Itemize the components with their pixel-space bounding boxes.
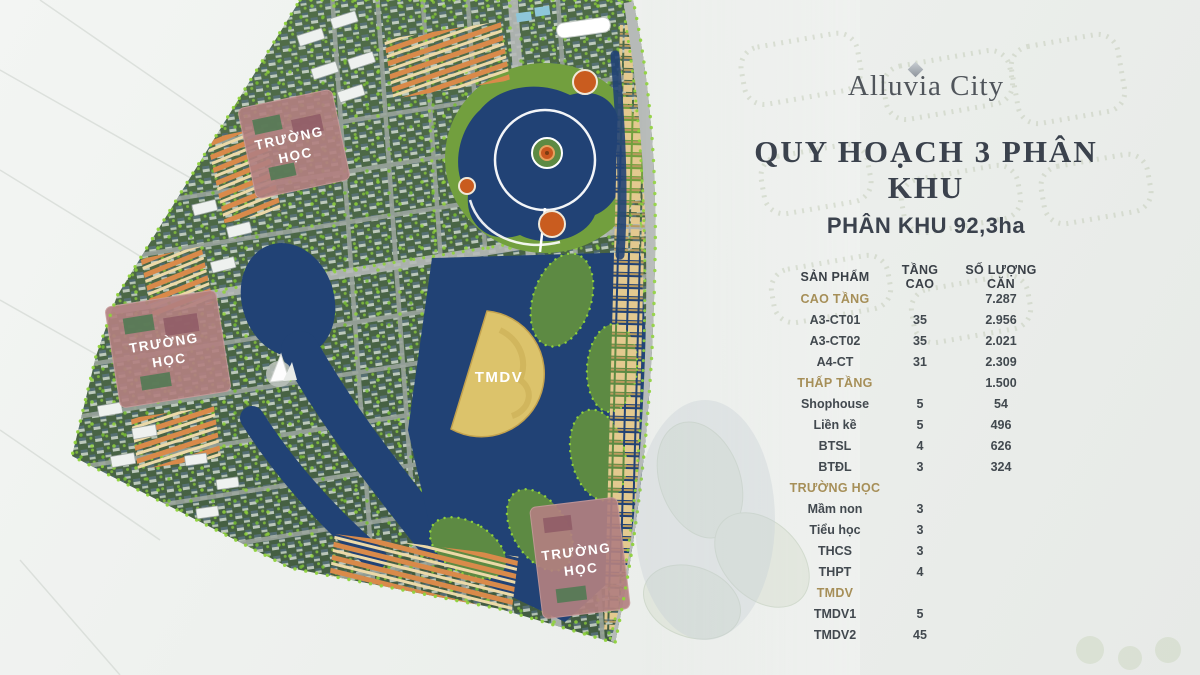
cell-product: TMDV1 [782,607,888,621]
school-zone-3: TRƯỜNG HỌC [530,497,631,619]
cell-units: 2.956 [952,313,1050,327]
cell-product: A3-CT01 [782,313,888,327]
screenshot-root: TRƯỜNG HỌC TRƯỜNG HỌC TRƯỜNG [0,0,1200,675]
cell-units: 2.021 [952,334,1050,348]
cell-floors: 4 [888,565,952,579]
table-header-row: SẢN PHẨM TẦNG CAO SỐ LƯỢNG CĂN [782,266,1050,287]
table-row: THPT 4 [782,561,1050,582]
cell-product: THPT [782,565,888,579]
cell-floors: 31 [888,355,952,369]
column-header-product: SẢN PHẨM [782,270,888,284]
cell-units: 1.500 [952,376,1050,390]
cell-units: 2.309 [952,355,1050,369]
cell-units: 54 [952,397,1050,411]
units-table: SẢN PHẨM TẦNG CAO SỐ LƯỢNG CĂN CAO TẦNG … [782,266,1050,645]
svg-text:TMDV: TMDV [475,369,524,386]
brand-name: Alluvia City [730,70,1122,103]
table-row: Tiểu học 3 [782,519,1050,540]
cell-floors: 5 [888,418,952,432]
table-row: TMDV2 45 [782,624,1050,645]
cell-product: A4-CT [782,355,888,369]
school-zone-2: TRƯỜNG HỌC [105,290,232,408]
cell-product: A3-CT02 [782,334,888,348]
table-row: THCS 3 [782,540,1050,561]
cell-units: 7.287 [952,292,1050,306]
cell-floors: 5 [888,607,952,621]
table-row: A3-CT02 35 2.021 [782,330,1050,351]
cell-product: Mầm non [782,502,888,516]
table-row: Shophouse 5 54 [782,393,1050,414]
cell-product: CAO TẦNG [782,292,888,306]
parcel: TRƯỜNG HỌC TRƯỜNG HỌC TRƯỜNG [35,0,738,675]
table-body: CAO TẦNG 7.287 A3-CT01 35 2.956 A3-CT02 … [782,288,1050,645]
brand-logo: Alluvia City [730,70,1122,110]
school-zone-1: TRƯỜNG HỌC [237,89,350,199]
cell-product: Liền kề [782,418,888,432]
cell-product: THCS [782,544,888,558]
info-panel: Alluvia City QUY HOẠCH 3 PHÂN KHU PHÂN K… [730,0,1122,645]
cell-floors: 3 [888,544,952,558]
table-row: TRƯỜNG HỌC [782,477,1050,498]
cell-floors: 3 [888,523,952,537]
cell-product: BTĐL [782,460,888,474]
table-row: CAO TẦNG 7.287 [782,288,1050,309]
cell-product: THẤP TẦNG [782,376,888,390]
cell-product: Tiểu học [782,523,888,537]
cell-product: TRƯỜNG HỌC [782,481,888,495]
table-row: A3-CT01 35 2.956 [782,309,1050,330]
column-header-units: SỐ LƯỢNG CĂN [952,263,1050,291]
cell-floors: 4 [888,439,952,453]
cell-floors: 3 [888,502,952,516]
table-row: TMDV1 5 [782,603,1050,624]
cell-product: BTSL [782,439,888,453]
cell-floors: 3 [888,460,952,474]
table-row: TMDV [782,582,1050,603]
cell-floors: 35 [888,334,952,348]
table-row: Liền kề 5 496 [782,414,1050,435]
cell-floors: 45 [888,628,952,642]
table-row: Mầm non 3 [782,498,1050,519]
cell-product: Shophouse [782,397,888,411]
page-subtitle: PHÂN KHU 92,3ha [730,213,1122,239]
cell-product: TMDV2 [782,628,888,642]
cell-product: TMDV [782,586,888,600]
cell-units: 496 [952,418,1050,432]
table-row: BTĐL 3 324 [782,456,1050,477]
table-row: A4-CT 31 2.309 [782,351,1050,372]
cell-floors: 5 [888,397,952,411]
page-title: QUY HOẠCH 3 PHÂN KHU [730,134,1122,206]
table-row: BTSL 4 626 [782,435,1050,456]
cell-units: 324 [952,460,1050,474]
cell-floors: 35 [888,313,952,327]
cell-units: 626 [952,439,1050,453]
table-row: THẤP TẦNG 1.500 [782,372,1050,393]
column-header-floors: TẦNG CAO [888,263,952,291]
lake-island [532,138,562,168]
